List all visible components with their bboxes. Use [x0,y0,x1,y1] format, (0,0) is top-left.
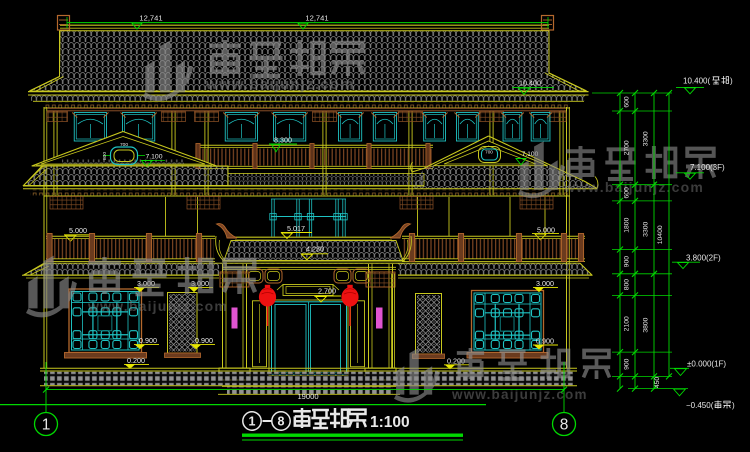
svg-text:0.900: 0.900 [536,337,554,346]
svg-text:7.100: 7.100 [145,154,162,161]
svg-text:5.000: 5.000 [537,225,555,234]
svg-text:2100: 2100 [624,316,631,331]
svg-text:1: 1 [42,417,51,434]
svg-text:600: 600 [624,96,631,108]
svg-text:): ) [730,76,733,85]
svg-text:19000: 19000 [297,392,318,401]
svg-text:8,300: 8,300 [274,136,292,145]
svg-text:2.700: 2.700 [318,286,336,295]
svg-text:1: 1 [249,415,256,429]
svg-text:7.100(3F): 7.100(3F) [690,163,725,172]
svg-text:700: 700 [120,142,128,148]
svg-text:4.230: 4.230 [306,244,324,253]
svg-text:www.baijunjz.com: www.baijunjz.com [205,76,355,93]
svg-text:450: 450 [654,377,661,389]
svg-text:1:100: 1:100 [370,414,410,431]
svg-text:12,741: 12,741 [139,13,162,22]
svg-text:0.200: 0.200 [127,356,145,365]
svg-text:−0.450(: −0.450( [686,401,714,410]
svg-text:3.000: 3.000 [536,279,554,288]
svg-text:700: 700 [485,150,493,155]
svg-text:600: 600 [624,187,631,199]
svg-text:1800: 1800 [624,217,631,232]
svg-text:900: 900 [624,358,631,370]
svg-text:www.baijunjz.com: www.baijunjz.com [563,179,704,195]
svg-text:0.900: 0.900 [195,336,213,345]
svg-text:10400: 10400 [657,225,664,244]
svg-text:www.baijunjz.com: www.baijunjz.com [87,298,228,314]
svg-text:5.000: 5.000 [69,226,87,235]
svg-text:3.800(2F): 3.800(2F) [686,253,721,262]
svg-text:12,741: 12,741 [305,13,328,22]
svg-text:8: 8 [560,417,569,434]
svg-text:8: 8 [278,415,285,429]
svg-text:3300: 3300 [643,221,650,236]
svg-text:3800: 3800 [643,317,650,332]
svg-text:10.400: 10.400 [519,78,541,87]
svg-text:2700: 2700 [624,140,631,155]
svg-text:800: 800 [624,279,631,291]
svg-text:0.900: 0.900 [139,336,157,345]
svg-text:3300: 3300 [643,131,650,146]
svg-text:): ) [732,401,735,410]
svg-text:900: 900 [624,256,631,268]
svg-text:±0.000(1F): ±0.000(1F) [687,360,726,369]
svg-text:800: 800 [102,152,108,160]
svg-text:5.017: 5.017 [287,224,305,233]
svg-text:10.400(: 10.400( [683,76,710,85]
